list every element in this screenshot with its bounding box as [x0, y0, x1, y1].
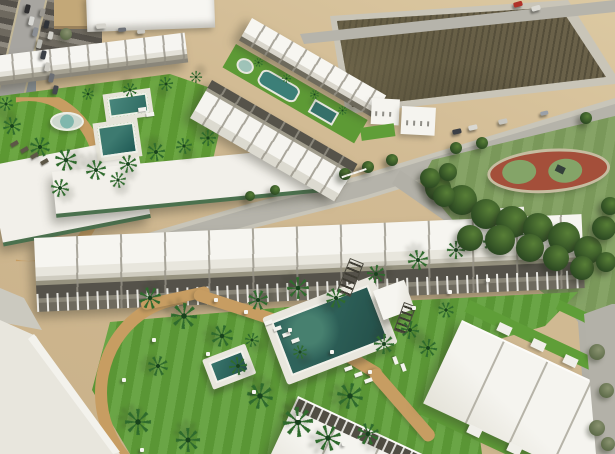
tree: [596, 252, 615, 272]
tree: [580, 112, 592, 124]
path-light: [140, 448, 144, 452]
tree: [450, 142, 462, 154]
track-infield: [547, 158, 583, 184]
aerial-render: [0, 0, 615, 454]
tree: [457, 225, 483, 251]
olive-tree: [601, 437, 615, 451]
upper-square-pool: [97, 122, 138, 158]
tree: [485, 225, 515, 255]
tree: [543, 245, 569, 271]
tree: [516, 234, 544, 262]
olive-tree: [589, 344, 605, 360]
tree: [439, 163, 457, 181]
olive-tree: [60, 28, 72, 40]
tree: [270, 185, 280, 195]
tree: [570, 256, 594, 280]
villa-block: [371, 98, 400, 125]
olive-tree: [599, 383, 614, 398]
tree: [362, 161, 374, 173]
tree: [420, 168, 440, 188]
path-light: [412, 306, 416, 310]
path-light: [486, 278, 490, 282]
path-light: [152, 338, 156, 342]
car: [96, 23, 106, 29]
tree: [386, 154, 398, 166]
car: [468, 124, 478, 131]
courtyard-plunge-pool: [308, 99, 340, 126]
car: [540, 110, 549, 116]
palm-tree: [253, 57, 264, 68]
oval-spa: [50, 112, 84, 131]
villa-lawn: [360, 123, 395, 141]
tree: [476, 137, 488, 149]
path-light: [330, 350, 334, 354]
path-light: [252, 390, 256, 394]
track-infield: [501, 159, 537, 185]
car: [452, 128, 462, 135]
car: [118, 27, 126, 32]
path-light: [244, 310, 248, 314]
path-light: [342, 442, 346, 446]
path-light: [368, 370, 372, 374]
car: [137, 29, 145, 34]
courtyard-round-pond: [234, 55, 257, 77]
tree: [601, 197, 615, 215]
path-light: [122, 378, 126, 382]
tree: [433, 185, 455, 207]
tree: [245, 191, 255, 201]
path-light: [288, 328, 292, 332]
path-light: [448, 290, 452, 294]
car: [48, 73, 55, 83]
olive-tree: [589, 420, 605, 436]
path-light: [214, 298, 218, 302]
path-light: [206, 352, 210, 356]
villa-block: [401, 106, 436, 136]
path-light: [296, 416, 300, 420]
car: [498, 118, 508, 125]
tree: [592, 216, 615, 240]
